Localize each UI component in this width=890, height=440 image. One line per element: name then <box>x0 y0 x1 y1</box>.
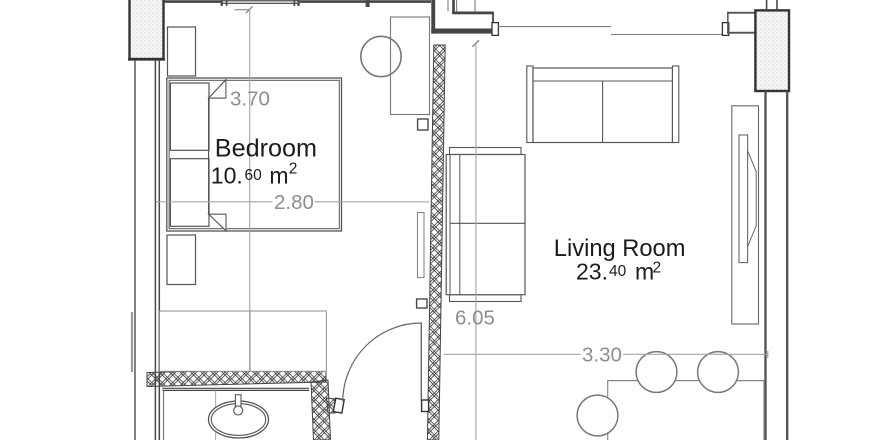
svg-text:2: 2 <box>653 260 662 277</box>
svg-text:m: m <box>269 162 288 188</box>
svg-text:3.30: 3.30 <box>582 343 622 366</box>
svg-text:Bedroom: Bedroom <box>215 135 317 163</box>
svg-text:10.: 10. <box>211 162 243 188</box>
svg-text:Living Room: Living Room <box>554 236 686 262</box>
svg-text:6.05: 6.05 <box>455 307 495 330</box>
svg-text:3.70: 3.70 <box>230 87 270 110</box>
svg-text:23.: 23. <box>576 259 608 285</box>
svg-text:60: 60 <box>245 167 263 184</box>
svg-text:40: 40 <box>609 263 627 280</box>
svg-text:2.80: 2.80 <box>274 191 314 214</box>
svg-text:2: 2 <box>289 160 298 177</box>
svg-text:m: m <box>635 259 654 285</box>
